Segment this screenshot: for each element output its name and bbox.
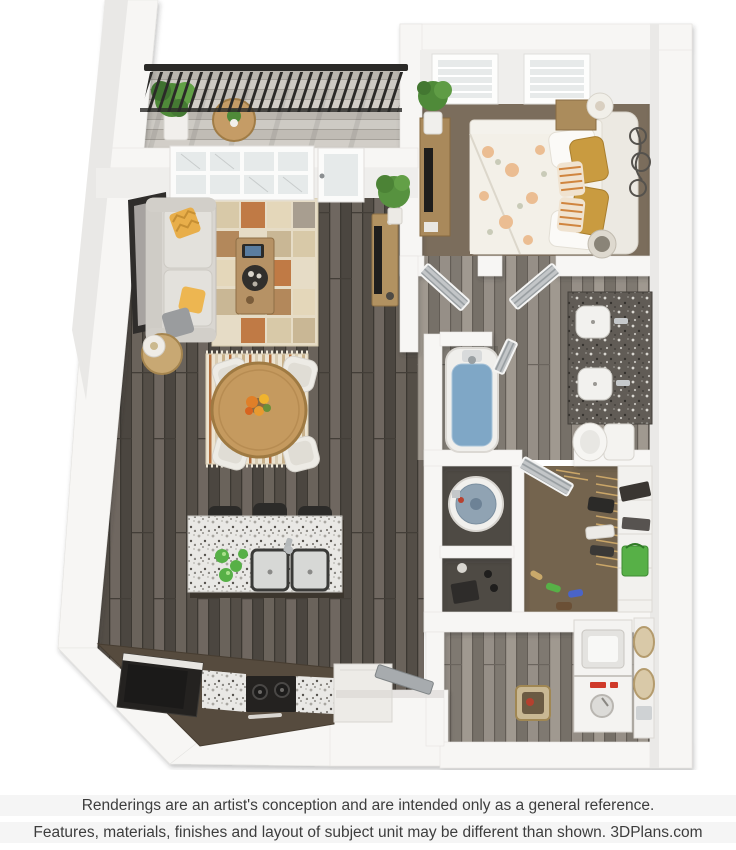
wicker-basket xyxy=(634,669,654,699)
bathtub xyxy=(446,348,498,452)
wall-hall-b xyxy=(478,256,502,276)
wall-nook-west xyxy=(424,334,442,632)
vanity-faucet xyxy=(616,380,630,386)
closet-shelving xyxy=(618,466,652,612)
green-tote-bag xyxy=(622,546,648,576)
laundry-door-shelf xyxy=(634,618,654,738)
living-room-window xyxy=(170,146,314,200)
side-table xyxy=(142,334,182,374)
apartment-floorplan xyxy=(0,0,736,770)
bedroom-window-2 xyxy=(524,54,590,104)
storage-box xyxy=(622,517,651,531)
wall-hall-west xyxy=(400,256,418,352)
balcony-railing xyxy=(144,64,408,71)
wicker-basket xyxy=(634,627,654,657)
coffee-table xyxy=(236,238,274,314)
disclaimer-line-2: Features, materials, finishes and layout… xyxy=(0,822,736,843)
tv xyxy=(374,226,382,294)
bath-water xyxy=(452,364,492,446)
bedroom-dresser xyxy=(420,118,450,236)
balcony-door xyxy=(318,148,364,202)
wall-top-bedroom xyxy=(400,24,692,50)
cooktop xyxy=(246,676,296,712)
wall-utility-mid xyxy=(440,546,514,558)
sofa xyxy=(146,198,216,342)
media-console xyxy=(372,214,398,306)
utility-closet xyxy=(449,477,503,531)
refrigerator xyxy=(117,653,203,716)
floor-basket xyxy=(516,686,550,720)
decor-tray xyxy=(242,265,268,291)
wall-hall-c xyxy=(556,256,652,276)
kitchen-island xyxy=(188,516,344,598)
garment-white xyxy=(585,525,614,540)
railing-balusters xyxy=(142,72,406,112)
pillow-striped xyxy=(556,161,585,198)
dining-area xyxy=(210,354,321,473)
disclaimer-line-1: Renderings are an artist's conception an… xyxy=(0,795,736,816)
dining-table xyxy=(212,363,306,457)
hamper xyxy=(588,230,616,258)
bed xyxy=(470,112,638,254)
vanity xyxy=(568,292,652,424)
washer-dryer-stack xyxy=(574,620,632,732)
counter-granite-right xyxy=(296,676,334,714)
bottle xyxy=(246,296,254,304)
railing-bottom-rail xyxy=(140,108,402,112)
door-handle xyxy=(320,174,325,179)
counter-granite-left xyxy=(202,670,246,712)
washer-buttons-red xyxy=(590,682,606,688)
pillow-striped xyxy=(556,197,585,234)
wall-nook-top xyxy=(440,332,492,346)
vanity-faucet xyxy=(614,318,628,324)
water-heater xyxy=(449,477,503,531)
bedroom-tv xyxy=(424,148,433,212)
wall-utility-east xyxy=(512,466,524,612)
